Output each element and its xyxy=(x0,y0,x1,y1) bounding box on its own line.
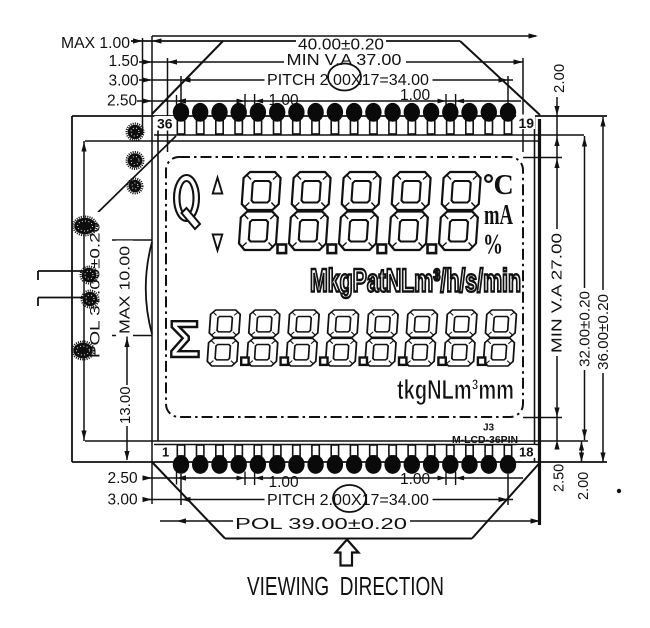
svg-text:2.50: 2.50 xyxy=(107,93,138,110)
svg-text:19: 19 xyxy=(519,115,535,131)
svg-text:MkgPatNLm³/h/s/min: MkgPatNLm³/h/s/min xyxy=(310,263,521,299)
svg-text:32.00±0.20: 32.00±0.20 xyxy=(578,291,594,367)
svg-text:POL 37.00±0.20: POL 37.00±0.20 xyxy=(88,222,103,358)
svg-text:3.00: 3.00 xyxy=(108,492,139,509)
svg-text:C: C xyxy=(494,170,514,201)
svg-text:13.00: 13.00 xyxy=(117,386,134,424)
svg-text:VIEWING DIRECTION: VIEWING DIRECTION xyxy=(247,571,444,601)
svg-text:PITCH 2.00X17=34.00: PITCH 2.00X17=34.00 xyxy=(267,492,429,509)
svg-text:1: 1 xyxy=(162,445,169,460)
svg-text:40.00±0.20: 40.00±0.20 xyxy=(298,37,384,54)
svg-text:1.50: 1.50 xyxy=(109,53,140,70)
svg-text:1.00: 1.00 xyxy=(400,471,431,488)
svg-text:36: 36 xyxy=(157,116,173,132)
svg-text:36.00±0.20: 36.00±0.20 xyxy=(596,294,612,370)
svg-text:mA: mA xyxy=(484,199,513,231)
svg-text:2.00: 2.00 xyxy=(551,64,568,93)
svg-text:MIN V.A 27.00: MIN V.A 27.00 xyxy=(550,233,566,353)
svg-text:2.50: 2.50 xyxy=(108,470,139,487)
svg-text:1.00: 1.00 xyxy=(400,87,431,104)
svg-text:2.50: 2.50 xyxy=(552,464,568,492)
svg-text:MAX 10.00: MAX 10.00 xyxy=(118,246,134,334)
svg-text:POL 39.00±0.20: POL 39.00±0.20 xyxy=(235,516,408,533)
svg-text:2.00: 2.00 xyxy=(576,472,592,500)
svg-text:1.00: 1.00 xyxy=(269,474,300,491)
svg-text:J3: J3 xyxy=(483,423,495,434)
svg-text:18: 18 xyxy=(519,445,533,460)
svg-text:Σ: Σ xyxy=(169,311,200,369)
svg-text:tkgNLm³mm: tkgNLm³mm xyxy=(397,374,514,405)
svg-text:3.00: 3.00 xyxy=(109,73,140,90)
svg-text:MIN V.A 37.00: MIN V.A 37.00 xyxy=(287,52,402,69)
svg-text:%: % xyxy=(483,229,503,261)
svg-text:MAX 1.00: MAX 1.00 xyxy=(61,35,130,52)
